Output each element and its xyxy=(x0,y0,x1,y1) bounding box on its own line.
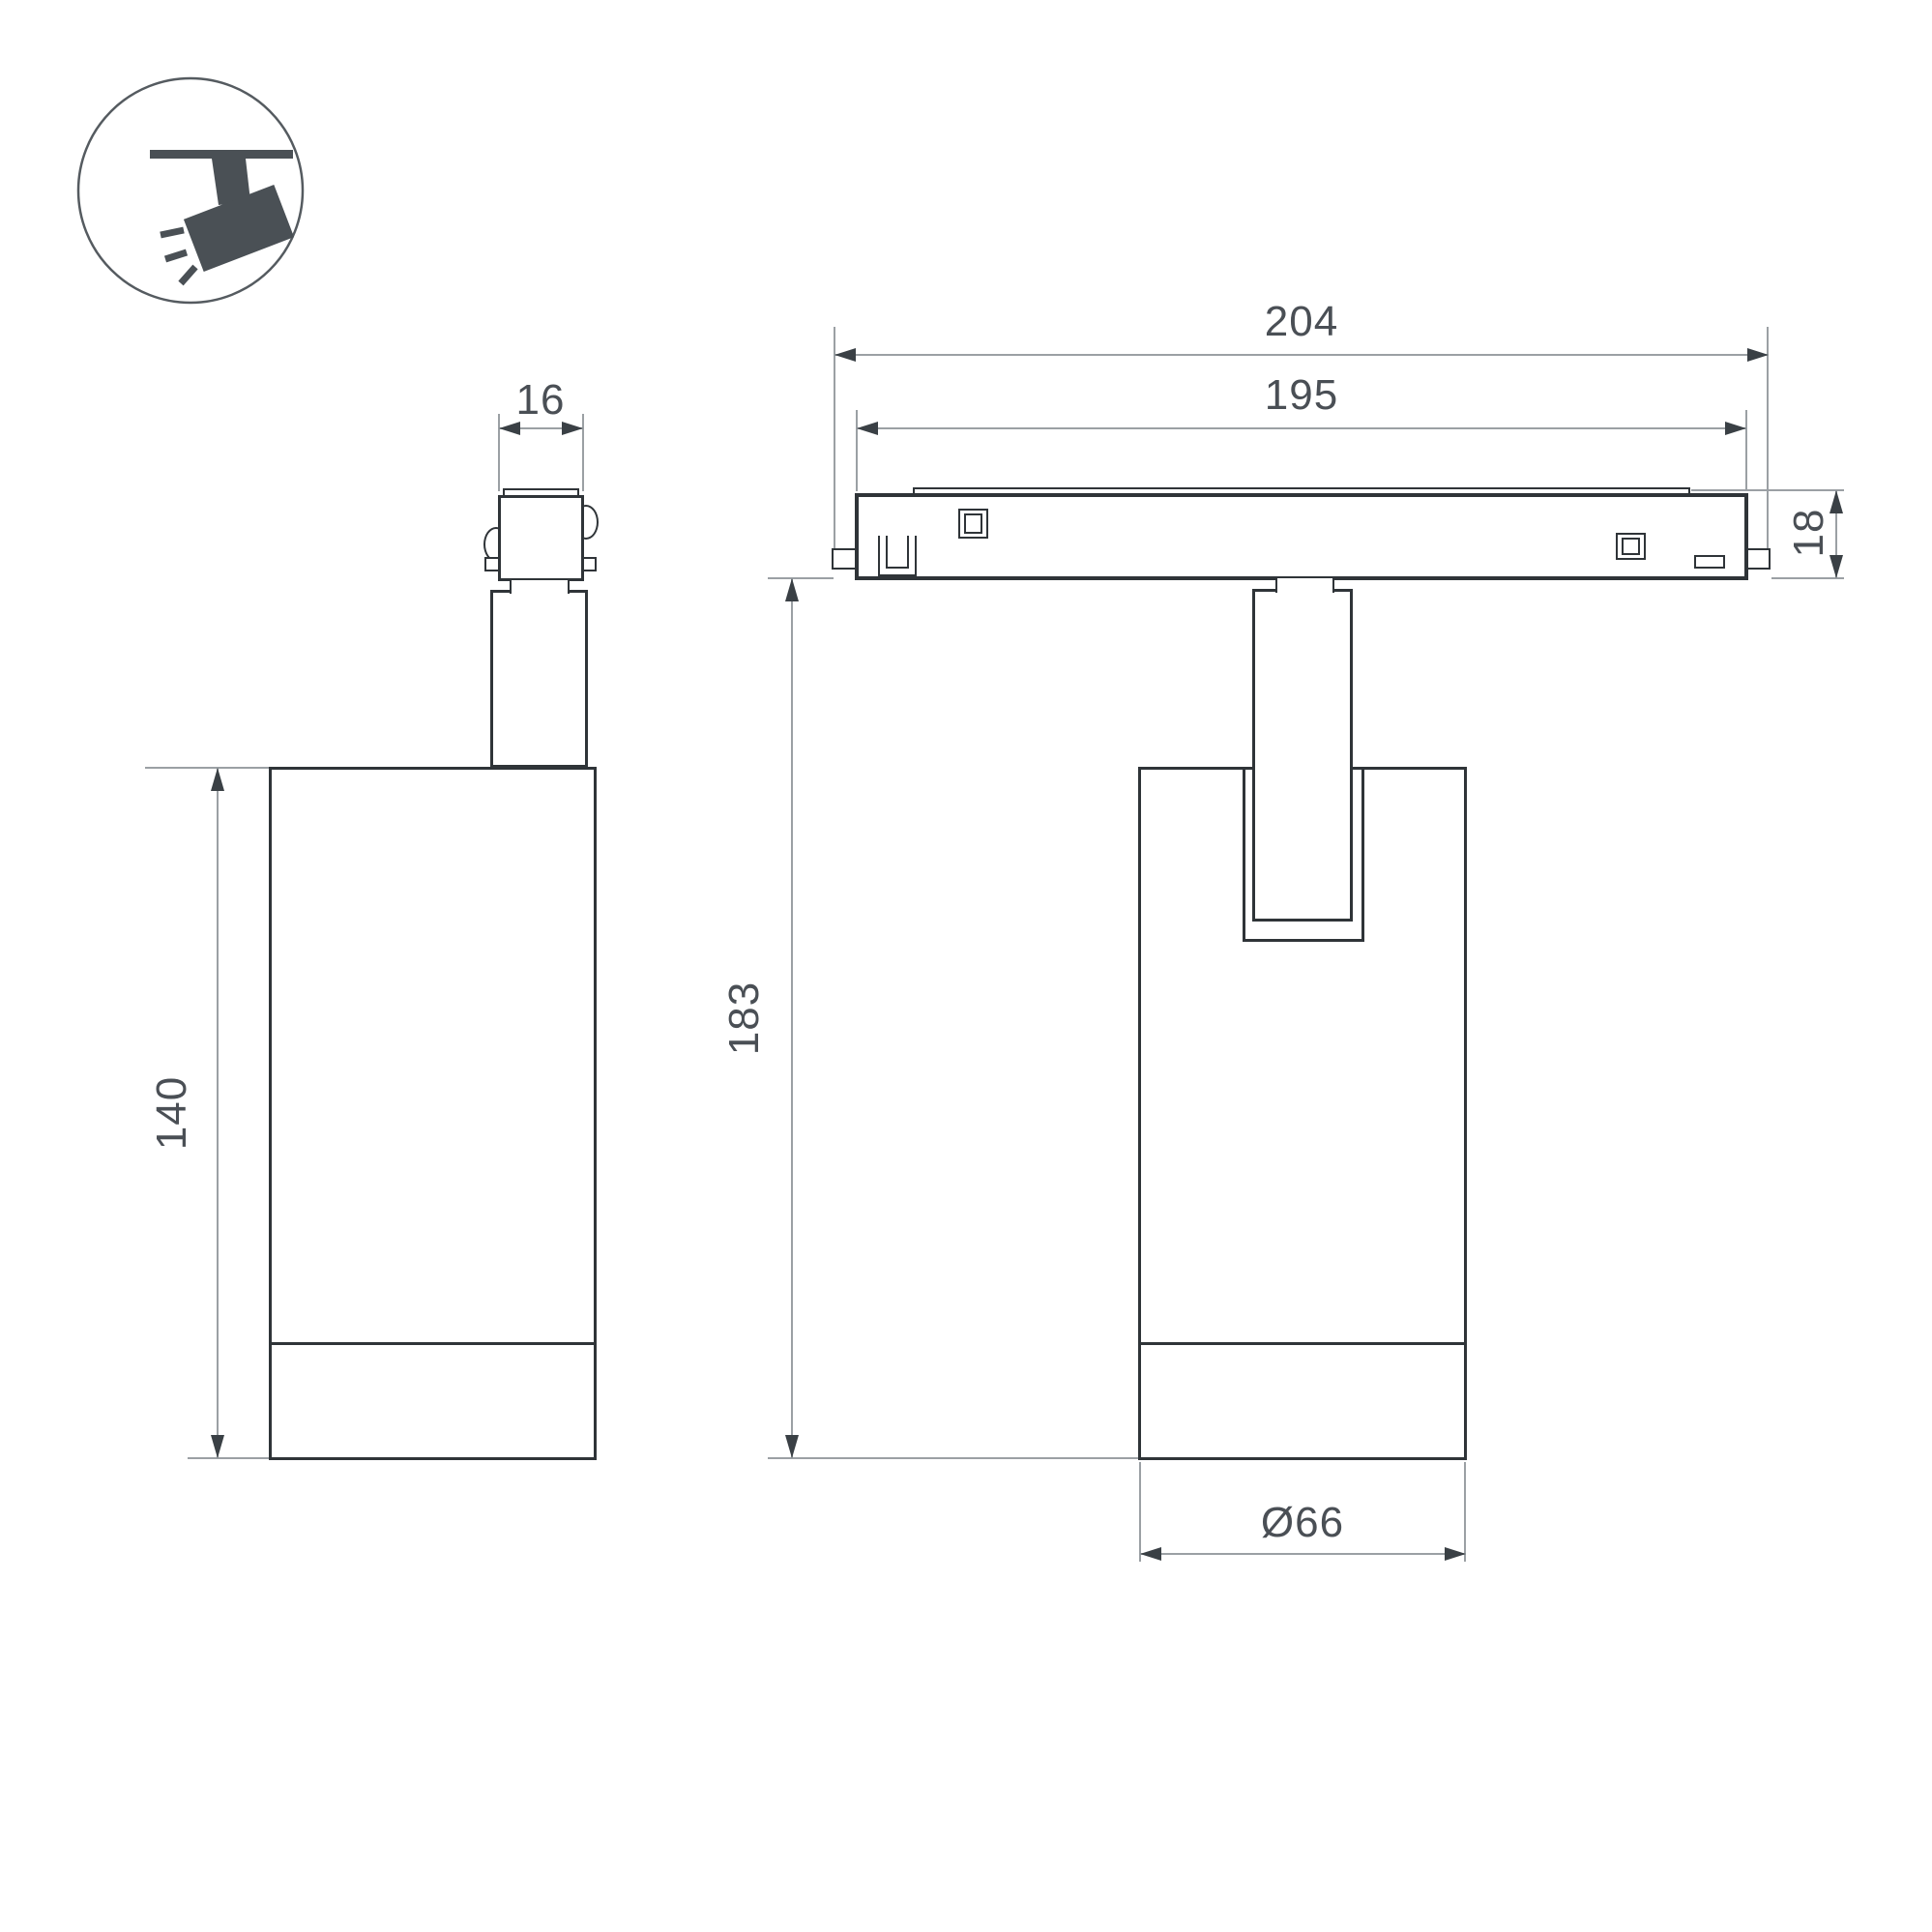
dim-140-extension-bottom xyxy=(188,1457,269,1459)
dim-195-arrow-right xyxy=(1725,422,1746,435)
icon-light-ray xyxy=(161,230,184,235)
dim-195-label: 195 xyxy=(1205,374,1398,417)
body-trim-line-side xyxy=(272,1342,594,1345)
dim-140-arrow-top xyxy=(211,768,224,791)
dim-16-arrow-right xyxy=(562,422,583,435)
dim-183-arrow-top xyxy=(785,578,799,601)
body-trim-line-front xyxy=(1141,1342,1464,1345)
dim-18-label: 18 xyxy=(1788,484,1830,581)
track-spotlight-icon xyxy=(68,68,319,319)
track-end-tab-right xyxy=(1744,548,1771,570)
dim-66-arrow-right xyxy=(1445,1547,1466,1561)
track-slot-right xyxy=(1694,555,1725,569)
body-outline-side-view xyxy=(269,767,597,1460)
track-end-tab-left xyxy=(832,548,858,570)
dim-183-extension-bottom xyxy=(768,1457,1140,1459)
dim-140-arrow-bottom xyxy=(211,1435,224,1458)
dim-204-line xyxy=(834,354,1769,356)
drawing-canvas: 16 140 204 195 18 xyxy=(0,0,1932,1932)
dim-140-line xyxy=(217,768,219,1458)
dim-204-arrow-right xyxy=(1747,348,1769,362)
dim-16-label: 16 xyxy=(492,379,589,422)
dim-195-line xyxy=(857,427,1746,429)
dim-18-arrow-bottom xyxy=(1830,555,1843,578)
stem-front xyxy=(1252,589,1353,922)
track-adapter-side xyxy=(498,495,584,581)
icon-ceiling-track xyxy=(150,150,293,159)
track-profile-front-view xyxy=(855,493,1748,580)
dim-66-label: Ø66 xyxy=(1206,1502,1399,1544)
dim-204-label: 204 xyxy=(1205,301,1398,343)
dim-16-arrow-left xyxy=(499,422,520,435)
dim-183-label: 183 xyxy=(723,960,766,1076)
neck-front xyxy=(1275,578,1334,593)
dim-140-extension-top xyxy=(145,767,269,769)
track-contact-left-inner xyxy=(964,513,982,534)
neck-side xyxy=(510,580,570,594)
dim-204-arrow-left xyxy=(834,348,856,362)
dim-195-arrow-left xyxy=(857,422,878,435)
track-contact-right-inner xyxy=(1622,538,1640,555)
dim-183-extension-top xyxy=(768,577,834,579)
dim-183-line xyxy=(791,578,793,1458)
track-clip-inner xyxy=(886,536,909,569)
dim-66-line xyxy=(1140,1553,1466,1555)
stem-side xyxy=(490,590,588,768)
dim-183-arrow-bottom xyxy=(785,1435,799,1458)
dim-66-arrow-left xyxy=(1140,1547,1161,1561)
dim-140-label: 140 xyxy=(151,1055,193,1171)
